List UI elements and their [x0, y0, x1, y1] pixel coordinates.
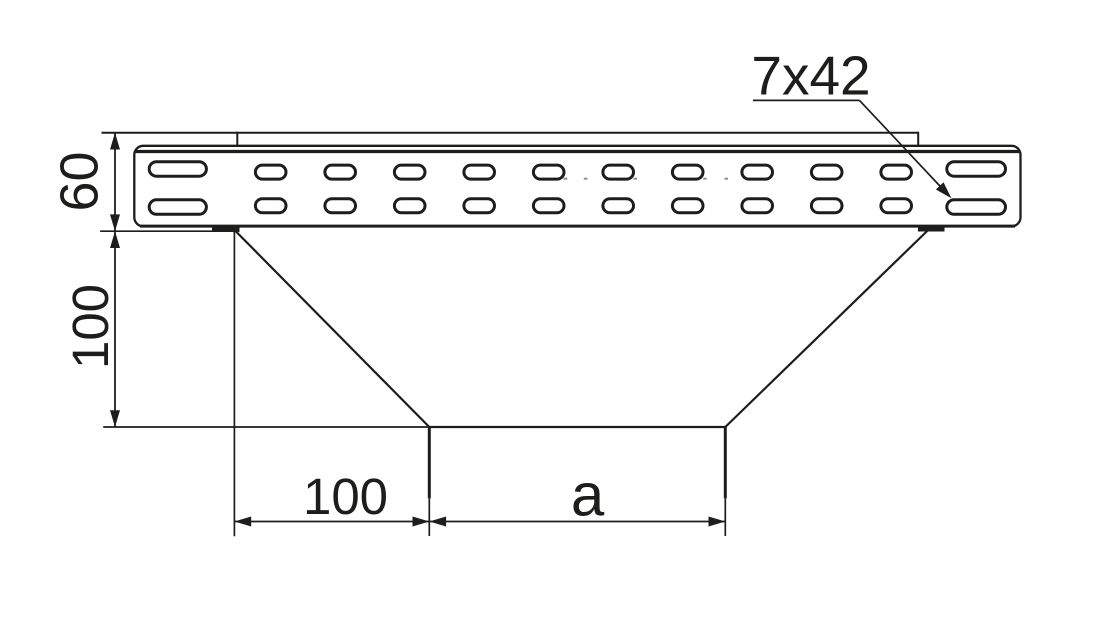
svg-text:60: 60: [50, 151, 110, 211]
svg-text:100: 100: [62, 284, 119, 369]
svg-text:a: a: [571, 462, 605, 529]
svg-text:7x42: 7x42: [751, 44, 870, 106]
svg-text:100: 100: [303, 468, 388, 525]
